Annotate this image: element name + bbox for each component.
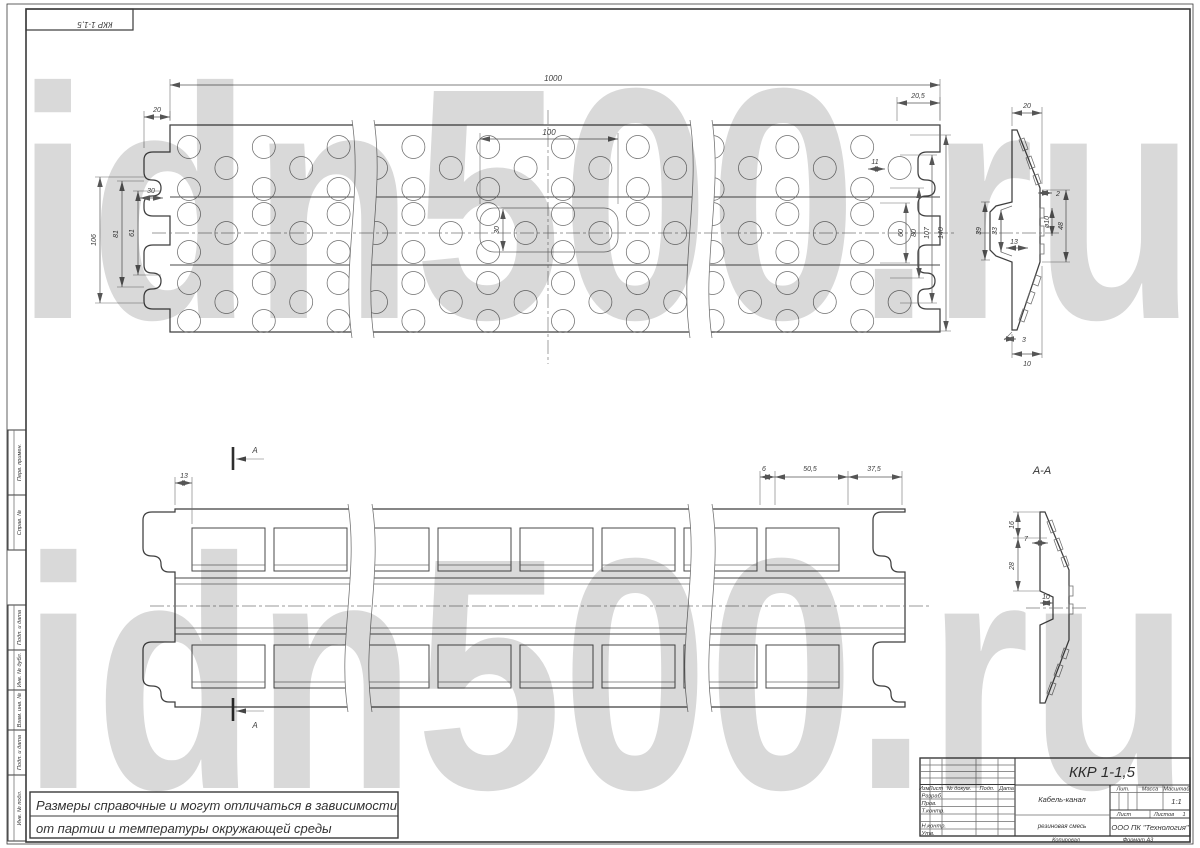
drawing-sheet: ККР 1-1,5 Перв. примен.Справ. №Подп. и д… xyxy=(0,0,1200,848)
dim-bottom-13: 13 xyxy=(180,473,188,480)
section-title: А-А xyxy=(1032,465,1051,477)
drawing-canvas: ККР 1-1,5 Перв. примен.Справ. №Подп. и д… xyxy=(0,0,1200,848)
dim-bottom-37-5: 37,5 xyxy=(867,466,881,473)
side-column-label: Перв. примен. xyxy=(17,444,23,481)
dim-bottom-50-5: 50,5 xyxy=(803,466,817,473)
dim-bottom-6: 6 xyxy=(762,466,766,473)
section-cut-mark-upper: А xyxy=(233,446,264,470)
section-arrow-label: А xyxy=(251,446,257,455)
watermark-text-top: idn500.ru xyxy=(16,19,1196,388)
watermark-text-bottom: idn500.ru xyxy=(22,489,1190,848)
